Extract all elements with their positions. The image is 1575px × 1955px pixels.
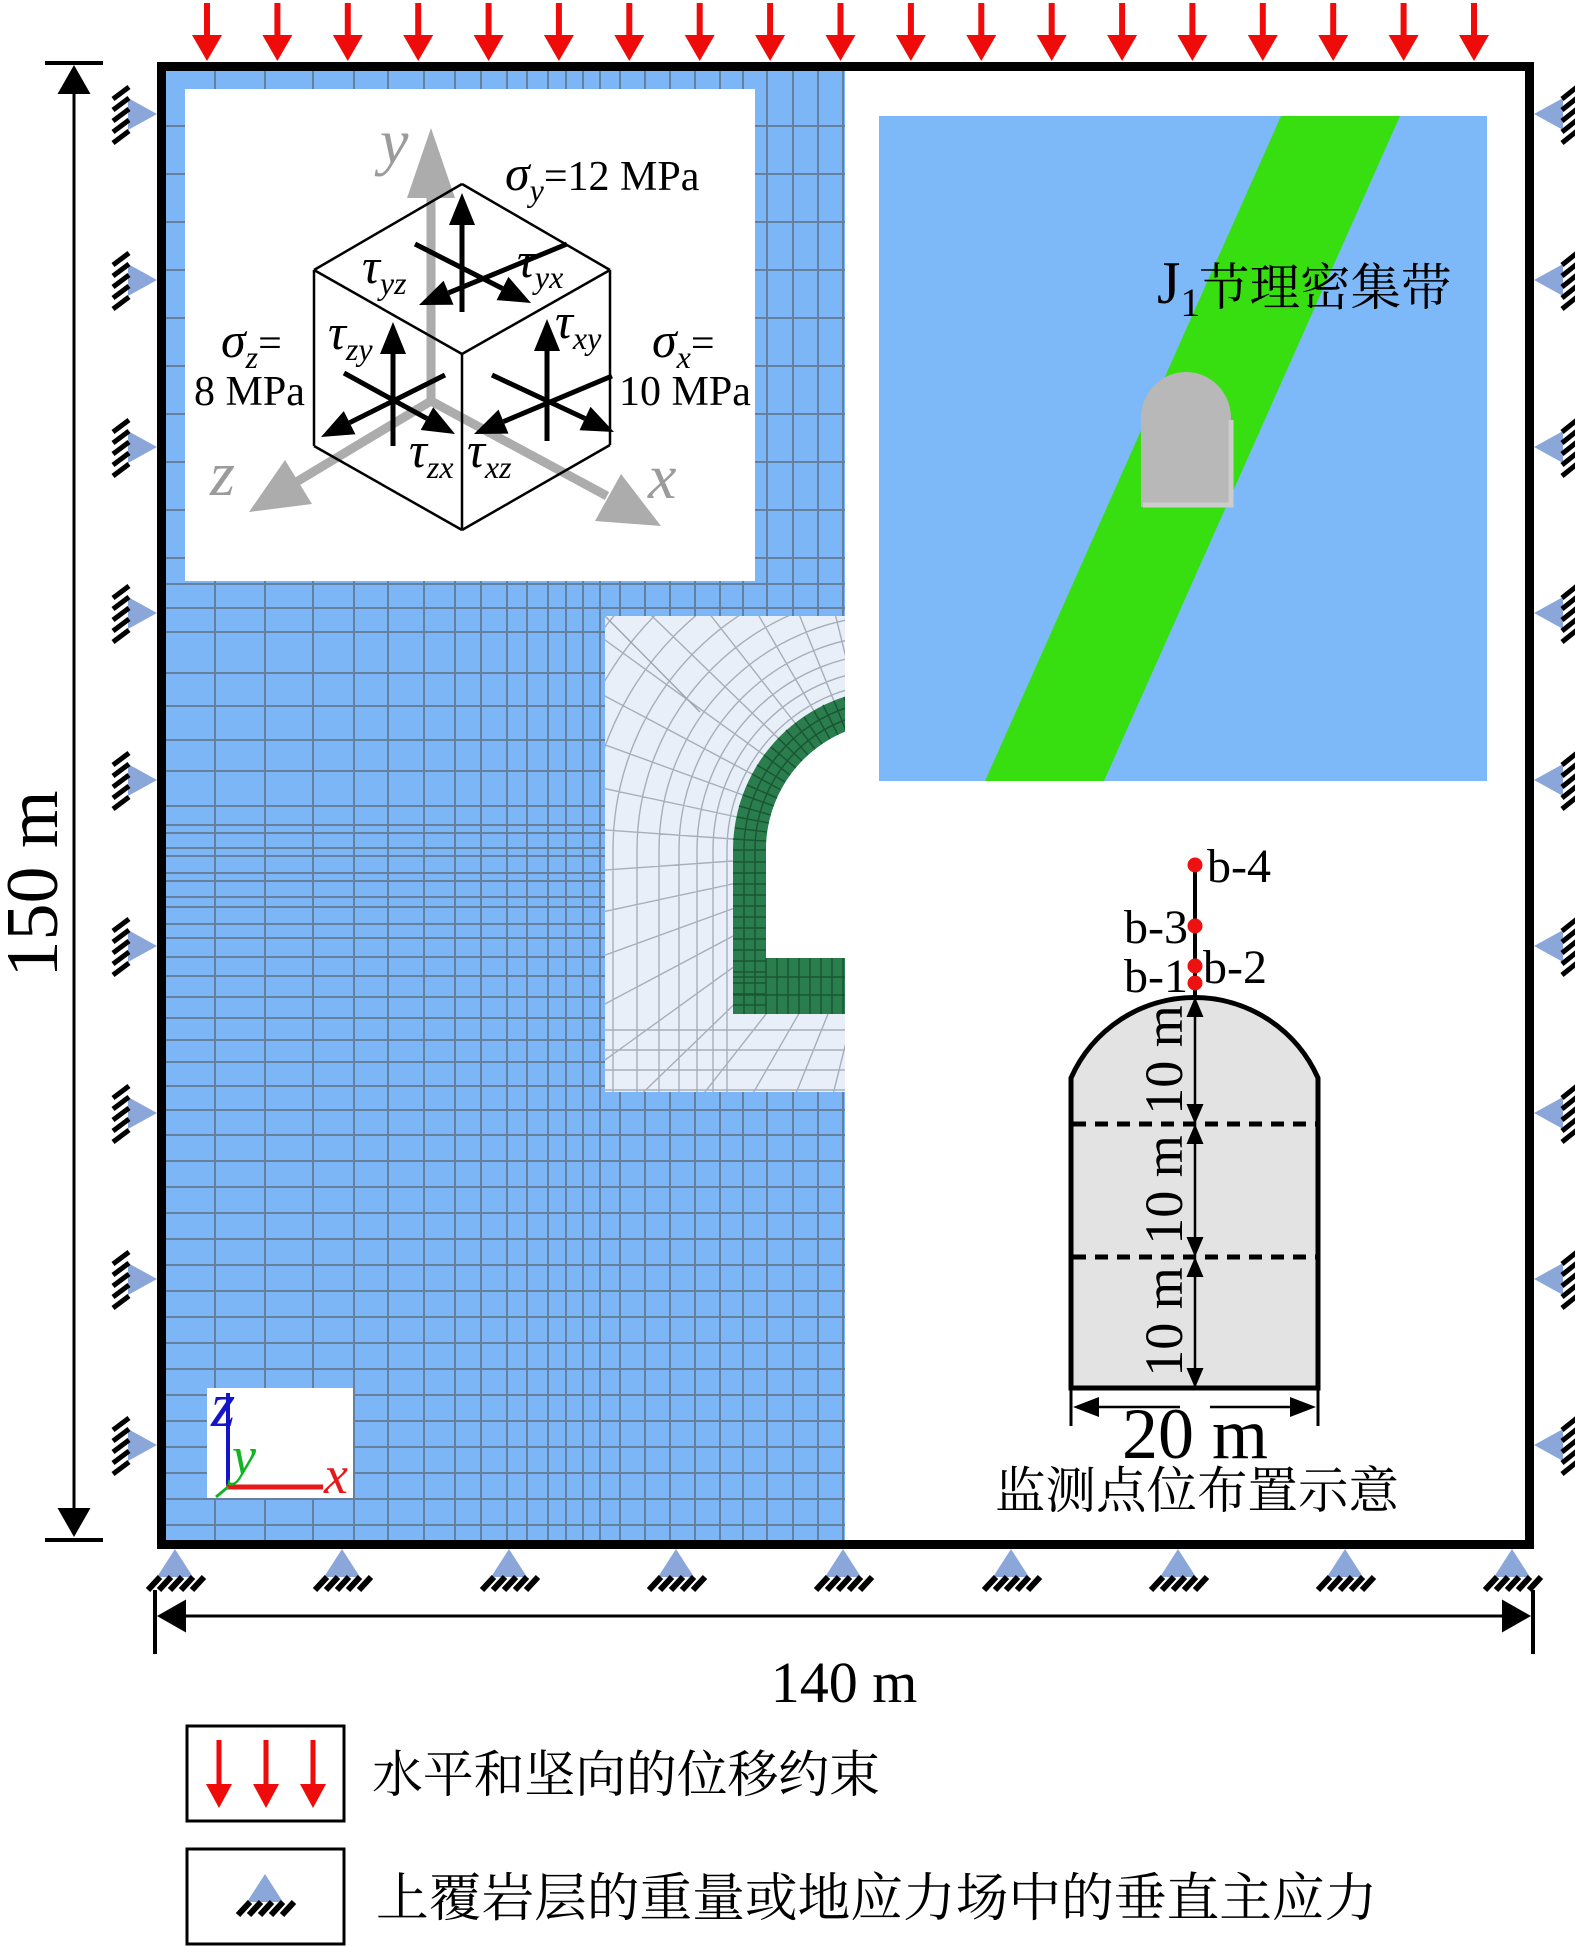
svg-text:y: y <box>374 106 409 177</box>
svg-text:x: x <box>647 441 676 512</box>
svg-text:20 m: 20 m <box>1122 1394 1268 1474</box>
svg-text:8 MPa: 8 MPa <box>194 369 305 415</box>
svg-text:b-1: b-1 <box>1124 950 1188 1003</box>
svg-text:b-3: b-3 <box>1124 901 1188 954</box>
svg-text:z: z <box>209 438 235 509</box>
svg-text:x: x <box>323 1445 348 1505</box>
svg-text:10 m: 10 m <box>1134 1005 1194 1115</box>
svg-text:150 m: 150 m <box>0 790 74 977</box>
svg-text:10 m: 10 m <box>1134 1267 1194 1377</box>
svg-text:y: y <box>227 1426 256 1486</box>
svg-text:10 m: 10 m <box>1134 1135 1194 1245</box>
svg-text:b-2: b-2 <box>1203 941 1267 994</box>
svg-text:10 MPa: 10 MPa <box>619 369 751 415</box>
svg-text:b-4: b-4 <box>1207 840 1271 893</box>
svg-text:140 m: 140 m <box>771 1650 918 1715</box>
